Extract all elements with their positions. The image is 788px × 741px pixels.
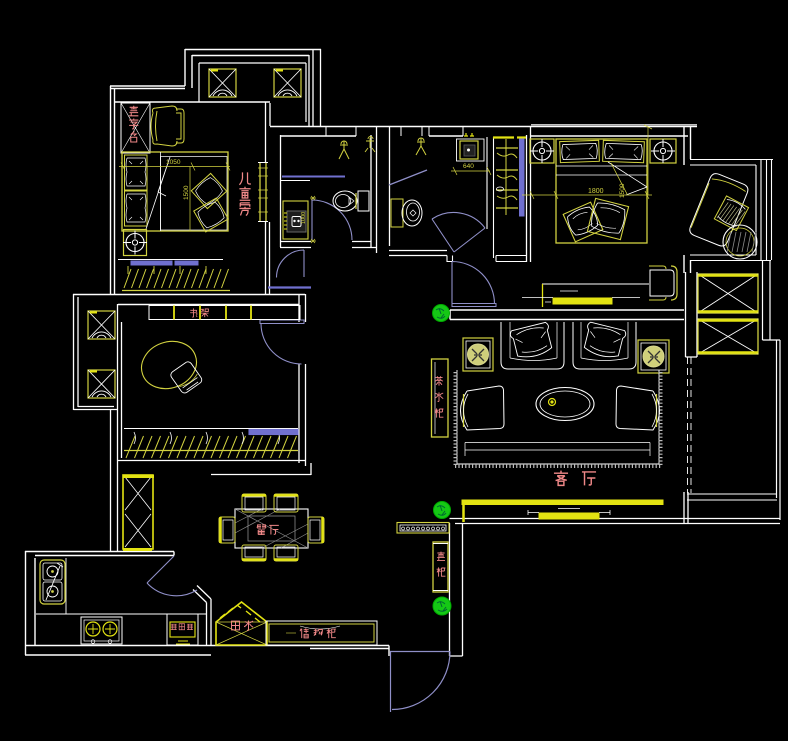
svg-text:1500: 1500 [619, 183, 626, 198]
svg-text:1500: 1500 [183, 185, 190, 200]
svg-text:1800: 1800 [588, 188, 604, 195]
svg-text:640: 640 [463, 163, 474, 170]
svg-text:1050: 1050 [166, 159, 181, 166]
svg-text:1000: 1000 [301, 212, 307, 224]
